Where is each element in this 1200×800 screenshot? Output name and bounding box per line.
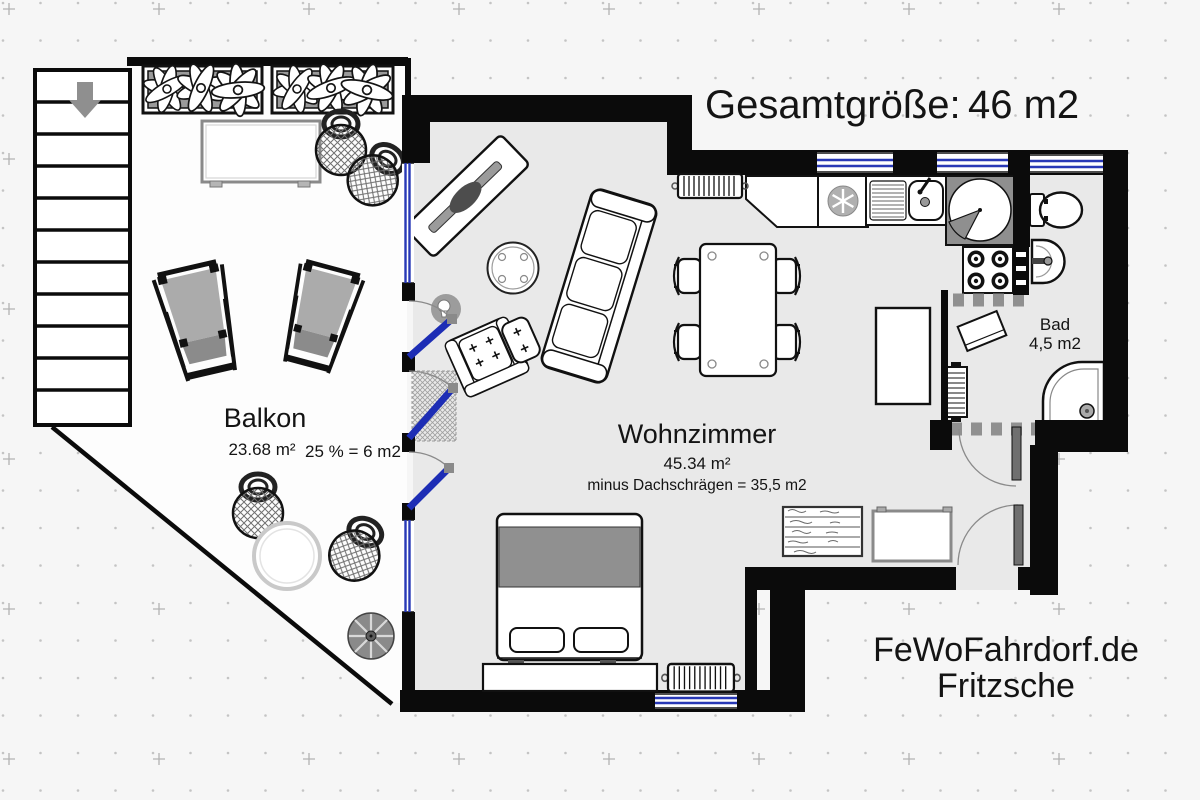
total-size-label: Gesamtgröße: [705, 83, 961, 127]
bed-blanket [499, 527, 640, 587]
footer-website: FeWoFahrdorf.de [873, 631, 1139, 669]
washbasin [1032, 240, 1065, 283]
livingroom-label: Wohnzimmer [618, 419, 777, 449]
footer-owner: Fritzsche [937, 667, 1075, 705]
corner-carousel [946, 176, 1014, 245]
livingroom-note: minus Dachschrägen = 35,5 m2 [587, 477, 806, 494]
side-table [873, 507, 952, 561]
round-garden-table [254, 523, 320, 589]
total-size-value: 46 m2 [968, 83, 1079, 127]
dining-chair [674, 323, 701, 361]
balcony-table [202, 121, 320, 187]
radiator [672, 174, 748, 198]
livingroom-area: 45.34 m² [663, 454, 730, 473]
dining-chair [674, 257, 701, 295]
coffee-table [488, 243, 539, 294]
bath-area: 4,5 m2 [1029, 334, 1081, 353]
pillow [574, 628, 628, 652]
entry-doorway [956, 567, 1018, 590]
bath-radiator [945, 362, 967, 422]
fridge [818, 176, 868, 227]
dresser-woodgrain [783, 507, 862, 556]
balcony-area: 23.68 m² [228, 440, 295, 459]
double-bed [497, 514, 642, 666]
bath-label: Bad [1040, 315, 1070, 334]
pillow [510, 628, 564, 652]
balcony-note: 25 % = 6 m2 [305, 442, 401, 461]
wardrobe [876, 308, 930, 404]
stairs-down [35, 70, 130, 425]
wall-dashes [1016, 252, 1026, 285]
balcony-wall-stub [405, 58, 411, 98]
kitchen-sink [866, 176, 948, 225]
floor-plan-page: Balkon 23.68 m² 25 % = 6 m2 [0, 0, 1200, 800]
bed-bench [483, 664, 657, 691]
dining-table [700, 244, 776, 376]
parasol-base [348, 613, 394, 659]
balcony-label: Balkon [224, 403, 307, 433]
stove [963, 247, 1013, 293]
floor-plan: Balkon 23.68 m² 25 % = 6 m2 [0, 0, 1200, 800]
toilet [1030, 193, 1082, 228]
radiator [662, 664, 740, 692]
